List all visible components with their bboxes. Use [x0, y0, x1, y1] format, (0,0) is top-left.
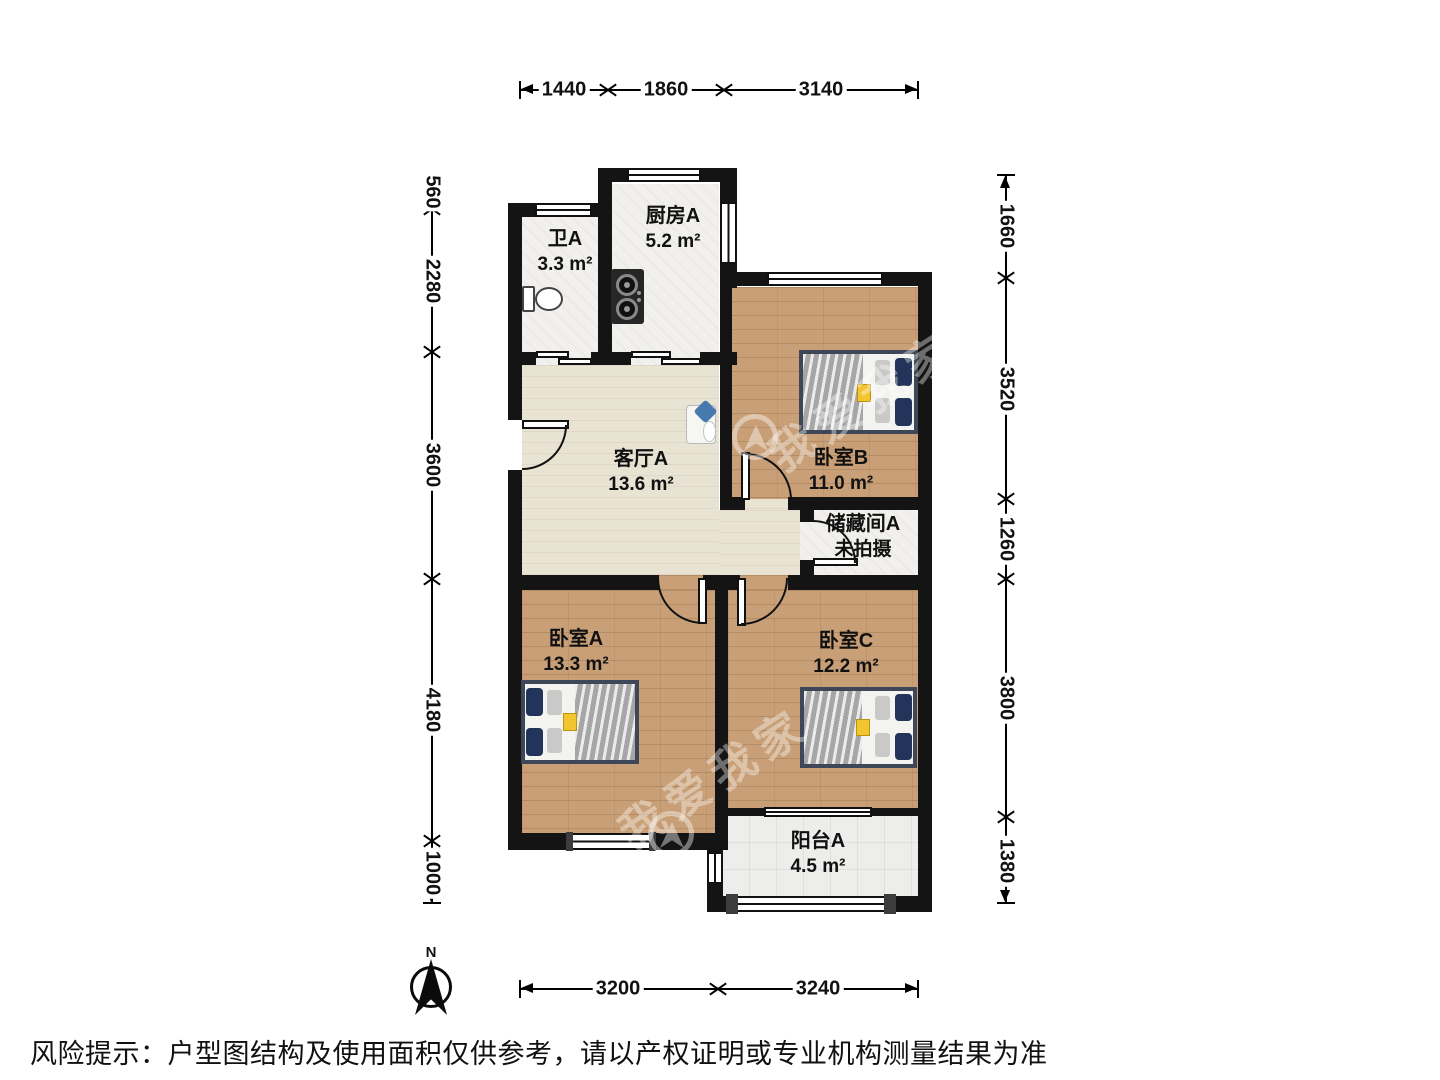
wall-segment	[788, 575, 932, 590]
room-label-bedroomC: 卧室C 12.2 m²	[813, 629, 878, 679]
storage-doorway-floor	[800, 522, 814, 560]
arrow-right-icon	[905, 983, 917, 993]
wall-segment	[722, 808, 764, 816]
dimension-tick-icon	[996, 489, 1016, 509]
wall-segment	[591, 352, 631, 365]
window-balcony-main	[731, 896, 893, 912]
room-area: 12.2 m²	[813, 654, 878, 679]
arrow-up-icon	[1000, 176, 1010, 188]
dimension-line-top: 1440 1860 3140	[519, 78, 919, 102]
window-balcony-side	[707, 852, 723, 884]
wall-segment	[508, 203, 522, 420]
dimension-value: 3200	[593, 978, 644, 1001]
dimension-value: 1260	[995, 514, 1018, 565]
sliding-door-kitchen	[661, 358, 701, 365]
compass-north-label: N	[405, 944, 457, 961]
dimension-value: 1660	[995, 201, 1018, 252]
dimension-value: 3240	[793, 978, 844, 1001]
dimension-tick-icon	[422, 569, 442, 589]
dimension-value: 4180	[421, 685, 444, 736]
door-bedroomA-swing	[657, 578, 703, 624]
toilet-icon	[522, 284, 564, 314]
room-name: 厨房A	[646, 204, 701, 229]
window-post	[649, 832, 656, 851]
window-bedroomB	[767, 272, 883, 286]
door-entry-swing	[522, 425, 567, 470]
room-area: 13.6 m²	[608, 472, 673, 497]
window-bathroom	[535, 203, 592, 217]
arrow-left-icon	[521, 983, 533, 993]
room-name: 储藏间A	[826, 512, 900, 537]
sofa-icon	[686, 401, 719, 444]
dimension-line-bottom: 3200 3240	[519, 977, 919, 1001]
wall-segment	[508, 833, 570, 850]
dimension-tick-icon	[996, 807, 1016, 827]
dimension-value: 560	[421, 172, 444, 211]
dimension-tick-icon	[714, 80, 734, 100]
livingroom-nook-floor	[719, 510, 800, 577]
dimension-endbar	[917, 81, 919, 99]
arrow-down-icon	[1000, 890, 1010, 902]
room-name: 阳台A	[791, 829, 846, 854]
window-post	[884, 894, 896, 914]
room-area: 11.0 m²	[809, 471, 873, 496]
room-label-bedroomB: 卧室B 11.0 m²	[809, 446, 873, 496]
sliding-door-kitchen	[631, 351, 671, 358]
room-area: 4.5 m²	[791, 854, 846, 879]
bed-bedroomC-icon	[800, 687, 917, 768]
dimension-value: 3600	[421, 440, 444, 491]
dimension-line-left: 560 2280 3600 4180 1000	[420, 174, 444, 904]
window-kitchen-top	[627, 168, 701, 182]
risk-notice: 风险提示：户型图结构及使用面积仅供参考，请以产权证明或专业机构测量结果为准	[30, 1032, 1048, 1071]
dimension-tick-icon	[708, 979, 728, 999]
arrow-right-icon	[905, 84, 917, 94]
floorplan-page: 1440 1860 3140 3200 3240 560 2280 3600 4…	[0, 0, 1440, 1080]
wall-segment	[703, 575, 740, 590]
window-post	[726, 894, 738, 914]
wall-segment	[508, 203, 535, 217]
bed-bedroomB-icon	[799, 350, 918, 434]
dimension-endbar	[423, 902, 441, 904]
wall-segment	[800, 510, 814, 522]
compass: N	[405, 944, 457, 1024]
dimension-tick-icon	[598, 80, 618, 100]
wall-segment	[720, 168, 737, 202]
wall-segment	[788, 497, 932, 510]
room-area: 未拍摄	[826, 537, 900, 562]
dimension-value: 3140	[796, 79, 847, 102]
wall-segment	[872, 808, 918, 816]
room-label-storage: 储藏间A 未拍摄	[826, 512, 900, 562]
stove-icon	[611, 269, 644, 324]
wall-segment	[893, 896, 932, 912]
wall-segment	[508, 352, 536, 365]
room-name: 客厅A	[608, 447, 673, 472]
door-bedroomC-swing	[741, 578, 788, 625]
window-bedroomC-balcony	[764, 807, 872, 817]
arrow-left-icon	[521, 84, 533, 94]
room-name: 卫A	[538, 227, 593, 252]
door-bedroomB-swing	[745, 453, 792, 500]
wall-segment	[508, 575, 659, 590]
dimension-tick-icon	[996, 268, 1016, 288]
wall-segment	[508, 470, 522, 848]
room-label-kitchen: 厨房A 5.2 m²	[646, 204, 701, 254]
room-label-balcony: 阳台A 4.5 m²	[791, 829, 846, 879]
dimension-value: 1000	[421, 848, 444, 899]
window-bedroomA	[570, 833, 652, 850]
wall-segment	[598, 168, 612, 352]
dimension-endbar	[997, 902, 1015, 904]
sliding-door-bathroom	[536, 351, 569, 358]
window-kitchen-side	[720, 202, 737, 264]
dimension-value: 1380	[995, 836, 1018, 887]
window-post	[566, 832, 573, 851]
dimension-value: 2280	[421, 256, 444, 307]
wall-segment	[918, 272, 932, 912]
room-name: 卧室A	[543, 627, 608, 652]
dimension-value: 3520	[995, 364, 1018, 415]
sliding-door-bathroom	[558, 358, 592, 365]
room-label-bedroomA: 卧室A 13.3 m²	[543, 627, 608, 677]
room-name: 卧室C	[813, 629, 878, 654]
room-area: 5.2 m²	[646, 229, 701, 254]
dimension-tick-icon	[422, 342, 442, 362]
wall-segment	[720, 286, 732, 497]
bed-bedroomA-icon	[521, 680, 639, 764]
room-label-livingroom: 客厅A 13.6 m²	[608, 447, 673, 497]
dimension-tick-icon	[996, 569, 1016, 589]
dimension-value: 1860	[641, 79, 692, 102]
dimension-line-right: 1660 3520 1260 3800 1380	[994, 174, 1018, 904]
dimension-endbar	[917, 980, 919, 998]
room-area: 13.3 m²	[543, 652, 608, 677]
wall-segment	[720, 272, 767, 286]
room-area: 3.3 m²	[538, 252, 593, 277]
room-name: 卧室B	[809, 446, 873, 471]
room-label-bathroom: 卫A 3.3 m²	[538, 227, 593, 277]
wall-segment	[715, 590, 728, 835]
dimension-value: 3800	[995, 673, 1018, 724]
dimension-value: 1440	[539, 79, 590, 102]
